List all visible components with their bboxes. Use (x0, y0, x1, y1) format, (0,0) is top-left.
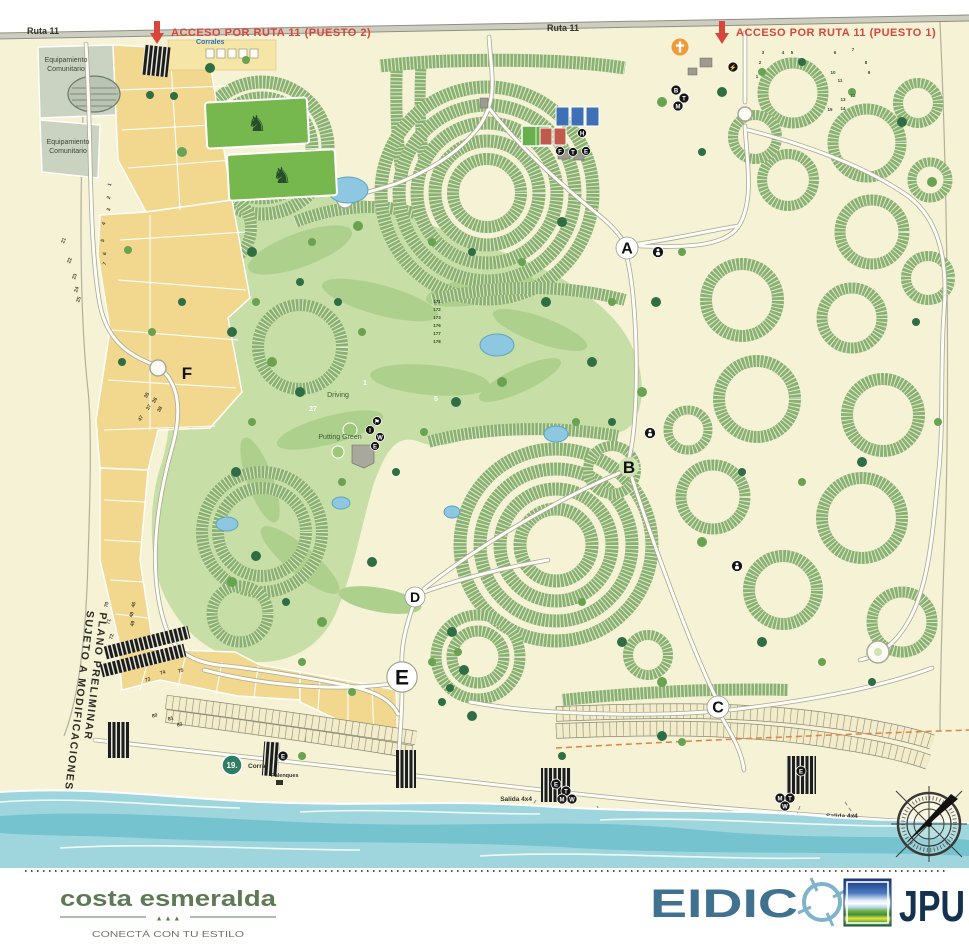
golf-hole-number: 1 (363, 380, 367, 387)
brand-tagline: CONECTÁ CON TU ESTILO (92, 929, 245, 939)
svg-text:11: 11 (838, 78, 843, 83)
svg-text:C: C (712, 700, 724, 717)
svg-text:A: A (621, 241, 633, 258)
svg-text:19.: 19. (226, 761, 237, 770)
ruta11-center-label: Ruta 11 (547, 23, 579, 33)
svg-text:E: E (395, 667, 409, 690)
clay-court (554, 128, 566, 145)
svg-text:171: 171 (433, 299, 441, 304)
svg-text:10: 10 (830, 70, 836, 75)
masterplan-svg: ♞ ♞ (0, 0, 969, 950)
golf-hole-number: 5 (434, 396, 438, 403)
svg-text:Equipamiento: Equipamiento (47, 139, 90, 146)
footer: costa esmeralda ▲ ▲ ▲ CONECTÁ CON TU EST… (0, 868, 969, 950)
corral-label: Corral (248, 763, 267, 770)
svg-text:15: 15 (827, 107, 833, 112)
costa-esmeralda-masterplan: ♞ ♞ (0, 0, 969, 950)
svg-text:M: M (676, 105, 681, 111)
guard-icon (653, 247, 664, 258)
svg-text:Equipamiento: Equipamiento (45, 57, 88, 64)
access-label: ACCESO POR RUTA 11 (PUESTO 2) (171, 27, 371, 39)
svg-text:14: 14 (840, 106, 846, 111)
brand-wordmark: costa esmeralda (60, 886, 277, 911)
svg-text:W: W (782, 805, 788, 811)
svg-text:M: M (778, 797, 783, 803)
salida-4x4-left-label: Salida 4x4 (500, 796, 532, 803)
clubhouse-building (352, 445, 374, 468)
access-label: ACCESO POR RUTA 11 (PUESTO 1) (736, 27, 936, 39)
jpu-logo: JPU (844, 879, 965, 931)
compass-rose (891, 786, 967, 862)
eidico-wordmark: EIDIC (650, 882, 798, 926)
tennis-court (556, 107, 569, 126)
svg-text:177: 177 (433, 331, 441, 336)
palenques-icon (276, 780, 283, 785)
tennis-court (586, 107, 599, 126)
svg-text:F: F (182, 364, 192, 383)
svg-text:D: D (410, 589, 420, 605)
svg-text:H: H (580, 132, 584, 138)
svg-text:Comunitario: Comunitario (47, 66, 85, 73)
jpu-logo-mark (844, 879, 891, 926)
svg-text:13: 13 (840, 97, 846, 102)
svg-text:T: T (788, 797, 792, 803)
svg-text:173: 173 (433, 315, 441, 320)
corral-structure (262, 741, 280, 776)
svg-text:F: F (558, 150, 562, 156)
svg-text:E: E (799, 770, 803, 776)
svg-text:12: 12 (850, 93, 856, 98)
brand-trees-icon: ▲ ▲ ▲ (156, 916, 181, 923)
svg-text:178: 178 (433, 339, 441, 344)
svg-text:M: M (560, 798, 565, 804)
svg-text:B: B (674, 89, 679, 95)
clay-court (540, 128, 552, 145)
corrales-label: Corrales (196, 39, 225, 46)
svg-text:B: B (623, 458, 635, 477)
svg-text:T: T (682, 97, 686, 103)
golf-hole-number: 27 (309, 406, 317, 413)
svg-text:⚡: ⚡ (729, 64, 736, 72)
jpu-wordmark: JPU (899, 882, 965, 931)
driving-range-label: Driving (327, 392, 349, 399)
putting-green-label: Putting Green (318, 434, 361, 441)
svg-text:⚑: ⚑ (374, 419, 379, 426)
ruta11-left-label: Ruta 11 (27, 26, 59, 36)
svg-text:E: E (554, 783, 558, 789)
guard-icon (732, 561, 743, 572)
tennis-court (571, 107, 584, 126)
svg-text:T: T (571, 151, 575, 157)
svg-text:E: E (373, 445, 377, 451)
palenques-label: Palenques (271, 773, 299, 779)
horse-icon: ♞ (247, 111, 267, 136)
corrales-pens (206, 49, 258, 58)
corral-e-icon: E (278, 751, 288, 761)
svg-text:E: E (584, 150, 588, 156)
church-icon (672, 39, 689, 56)
svg-text:176: 176 (433, 323, 441, 328)
access-arrow-icon (719, 21, 725, 33)
access-arrow-icon (154, 21, 160, 33)
svg-text:W: W (377, 436, 383, 442)
horse-icon: ♞ (272, 163, 292, 188)
svg-text:E: E (281, 755, 285, 761)
svg-text:Comunitario: Comunitario (49, 148, 87, 155)
guard-icon (645, 428, 656, 439)
svg-text:W: W (569, 798, 575, 804)
svg-text:172: 172 (433, 307, 441, 312)
